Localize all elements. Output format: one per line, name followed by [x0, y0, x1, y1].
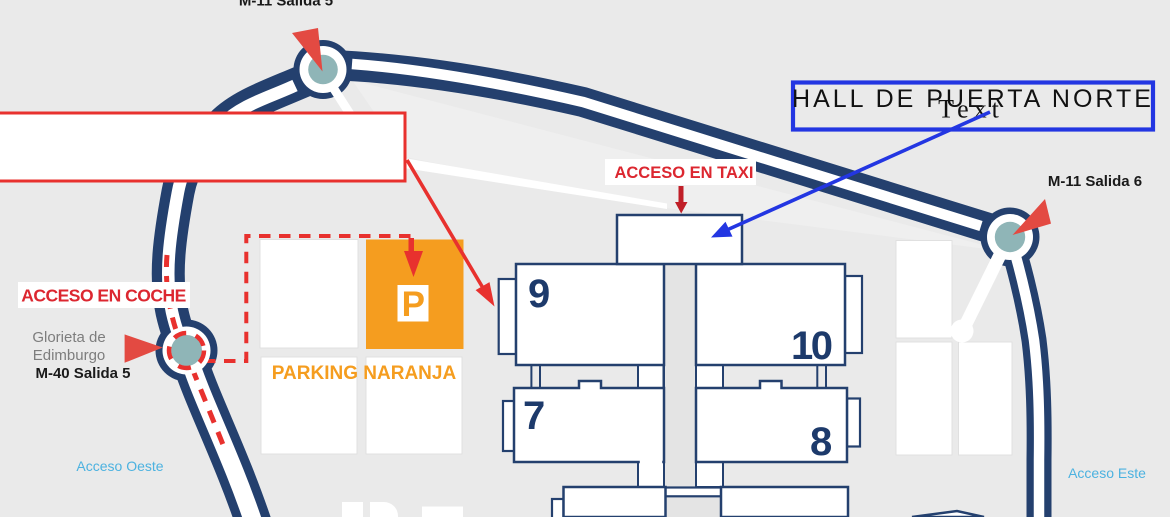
svg-text:Acceso Este: Acceso Este: [1068, 465, 1146, 481]
svg-text:Glorieta de: Glorieta de: [32, 329, 105, 346]
svg-text:M-11 Salida 5: M-11 Salida 5: [239, 0, 333, 10]
svg-text:7: 7: [523, 394, 545, 438]
svg-text:M-40 Salida 5: M-40 Salida 5: [35, 365, 130, 382]
svg-text:Acceso Oeste: Acceso Oeste: [76, 458, 163, 474]
svg-text:P: P: [402, 285, 425, 324]
svg-text:10: 10: [791, 324, 832, 368]
svg-text:Edimburgo: Edimburgo: [33, 347, 106, 364]
svg-text:PARKING NARANJA: PARKING NARANJA: [272, 363, 457, 384]
svg-text:ACCESO EN COCHE: ACCESO EN COCHE: [21, 286, 186, 306]
svg-text:9: 9: [528, 272, 550, 316]
svg-text:8: 8: [810, 420, 832, 464]
svg-text:M-11 Salida 6: M-11 Salida 6: [1048, 173, 1142, 190]
svg-text:ACCESO EN TAXI: ACCESO EN TAXI: [614, 164, 753, 182]
